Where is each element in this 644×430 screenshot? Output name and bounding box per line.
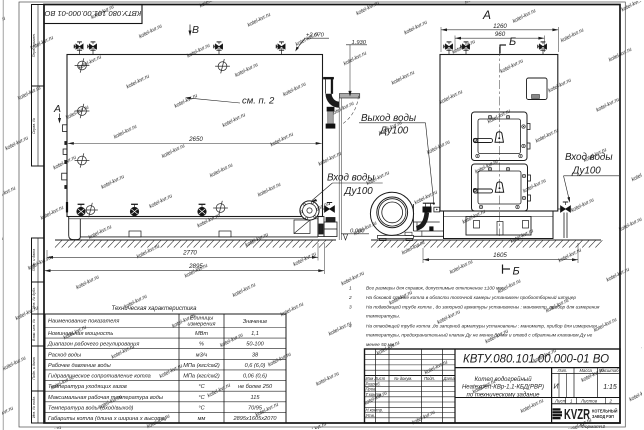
svg-text:2770: 2770 (182, 250, 197, 257)
svg-text:Вход воды: Вход воды (565, 152, 613, 163)
svg-text:Б: Б (509, 36, 516, 48)
svg-text:КВТУ.080.101.00.000-01 ВО: КВТУ.080.101.00.000-01 ВО (463, 354, 609, 366)
svg-text:Номинальная мощность: Номинальная мощность (48, 331, 113, 337)
svg-text:Масса: Масса (580, 368, 593, 373)
svg-text:50-100: 50-100 (246, 342, 264, 348)
svg-text:°С: °С (198, 384, 205, 390)
svg-text:Изм Лист: Изм Лист (366, 376, 386, 381)
svg-text:1:15: 1:15 (603, 384, 617, 391)
svg-text:Подп. и дата: Подп. и дата (32, 249, 36, 272)
svg-text:2895х1605х2070: 2895х1605х2070 (233, 416, 278, 422)
svg-text:Температура уходящих газов: Температура уходящих газов (48, 384, 127, 390)
svg-text:Листов: Листов (580, 398, 598, 403)
svg-text:В: В (192, 24, 199, 36)
svg-text:Котел водогрейный: Котел водогрейный (474, 376, 532, 383)
svg-text:Формат: Формат (581, 424, 600, 430)
svg-text:Т.контр.: Т.контр. (366, 392, 383, 397)
svg-text:Н.контр.: Н.контр. (366, 408, 384, 413)
svg-text:№ докум.: № докум. (394, 376, 412, 381)
svg-text:Инв. № подл.: Инв. № подл. (32, 396, 36, 418)
svg-text:На подводящей трубе котла ,: На подводящей трубе котла , до запорной … (366, 304, 600, 311)
svg-text:70/95: 70/95 (248, 405, 263, 411)
svg-text:Ду100: Ду100 (379, 126, 409, 137)
svg-text:На боковой стенке котла в обла: На боковой стенке котла в области топочн… (366, 294, 576, 301)
svg-text:Перв. примен.: Перв. примен. (32, 33, 36, 57)
svg-text:температуры.: температуры. (366, 315, 400, 320)
svg-text:Гидравлическое сопротивление к: Гидравлическое сопротивление котла (48, 374, 151, 380)
svg-text:3: 3 (349, 305, 352, 311)
svg-text:2: 2 (609, 398, 613, 403)
svg-text:115: 115 (251, 395, 261, 401)
svg-text:Ду100: Ду100 (572, 166, 602, 177)
svg-text:менее 50 мм.: менее 50 мм. (366, 342, 396, 348)
svg-text:не более 250: не более 250 (238, 384, 273, 390)
svg-text:Взам. инв. №: Взам. инв. № (32, 319, 36, 341)
svg-text:°С: °С (198, 395, 205, 401)
svg-text:Рабочее давление воды: Рабочее давление воды (48, 363, 111, 369)
svg-text:1605: 1605 (493, 252, 507, 259)
svg-text:Значение: Значение (243, 319, 268, 325)
svg-text:по техническому задание: по техническому задание (467, 393, 541, 399)
svg-text:0,6 (6,0): 0,6 (6,0) (245, 363, 266, 369)
svg-text:°С: °С (198, 405, 205, 411)
svg-text:Максимальная рабочая температу: Максимальная рабочая температура воды (48, 395, 163, 401)
svg-text:МПа (кгс/см2): МПа (кгс/см2) (183, 374, 220, 380)
svg-text:Температура воды (вход/выход): Температура воды (вход/выход) (48, 405, 134, 411)
svg-text:Лист: Лист (554, 398, 567, 403)
svg-text:МВт: МВт (195, 331, 208, 337)
svg-text:38: 38 (252, 352, 259, 358)
svg-text:см. п. 2: см. п. 2 (242, 96, 275, 107)
svg-text:Диапазон рабочего регулировани: Диапазон рабочего регулирования (47, 342, 139, 348)
svg-text:1: 1 (349, 285, 352, 291)
svg-text:КВТУ.080.101.00.000-01 ВО: КВТУ.080.101.00.000-01 ВО (45, 9, 142, 18)
svg-text:Дата: Дата (443, 376, 456, 381)
svg-text:Ду100: Ду100 (344, 186, 374, 197)
svg-text:Техническая характеристика: Техническая характеристика (112, 306, 198, 312)
svg-text:Масштаб: Масштаб (599, 368, 619, 373)
svg-text:Пров.: Пров. (366, 387, 377, 392)
svg-text:Инв. № дубл.: Инв. № дубл. (32, 287, 36, 309)
svg-text:Разраб.: Разраб. (366, 381, 381, 386)
svg-text:температуры, предохранительный: температуры, предохранительный клапан Ду… (366, 332, 593, 339)
svg-text:Расход воды: Расход воды (48, 352, 81, 358)
svg-text:Утв.: Утв. (366, 413, 376, 418)
svg-text:Габариты котла (длина х ширина: Габариты котла (длина х ширина х высота) (48, 416, 167, 422)
svg-text:А: А (53, 103, 61, 115)
svg-text:Выход воды: Выход воды (361, 113, 417, 124)
svg-text:+2.070: +2.070 (306, 33, 325, 39)
svg-text:А3: А3 (598, 424, 605, 430)
svg-text:На отводящей трубе котла ,до з: На отводящей трубе котла ,до запорной ар… (366, 322, 597, 329)
svg-text:мм: мм (198, 416, 206, 422)
svg-text:А: А (482, 8, 491, 22)
svg-text:м3/ч: м3/ч (196, 352, 207, 358)
svg-text:%: % (199, 342, 204, 348)
svg-text:Вход воды: Вход воды (327, 173, 375, 184)
svg-text:960: 960 (495, 31, 506, 38)
svg-text:МПа (кгс/см2): МПа (кгс/см2) (183, 363, 220, 369)
svg-text:1,1: 1,1 (251, 331, 259, 337)
svg-text:1260: 1260 (493, 23, 507, 30)
svg-text:2: 2 (348, 295, 352, 301)
svg-text:2650: 2650 (188, 136, 203, 143)
svg-text:2895: 2895 (188, 263, 203, 270)
svg-text:измерения: измерения (188, 322, 216, 328)
svg-text:Лит.: Лит. (557, 368, 568, 373)
svg-text:ЗАВОД РЭП: ЗАВОД РЭП (592, 414, 614, 419)
svg-text:Подп. и дата: Подп. и дата (32, 357, 36, 380)
svg-text:Справ. №: Справ. № (32, 118, 36, 134)
svg-text:Б: Б (513, 266, 520, 278)
svg-text:КОТЕЛЬНЫЙ: КОТЕЛЬНЫЙ (592, 409, 618, 414)
svg-text:4: 4 (349, 323, 352, 329)
svg-text:Все размеры для справок, допус: Все размеры для справок, допустимые откл… (366, 285, 504, 291)
svg-text:0,06 (0,6): 0,06 (0,6) (243, 374, 267, 380)
svg-text:Heatexpert-КВр-1,1-КБД(РВР): Heatexpert-КВр-1,1-КБД(РВР) (462, 385, 544, 391)
svg-text:Подп.: Подп. (424, 376, 435, 381)
svg-text:KVZR: KVZR (564, 407, 590, 423)
svg-text:Наименование показателя: Наименование показателя (48, 319, 119, 325)
